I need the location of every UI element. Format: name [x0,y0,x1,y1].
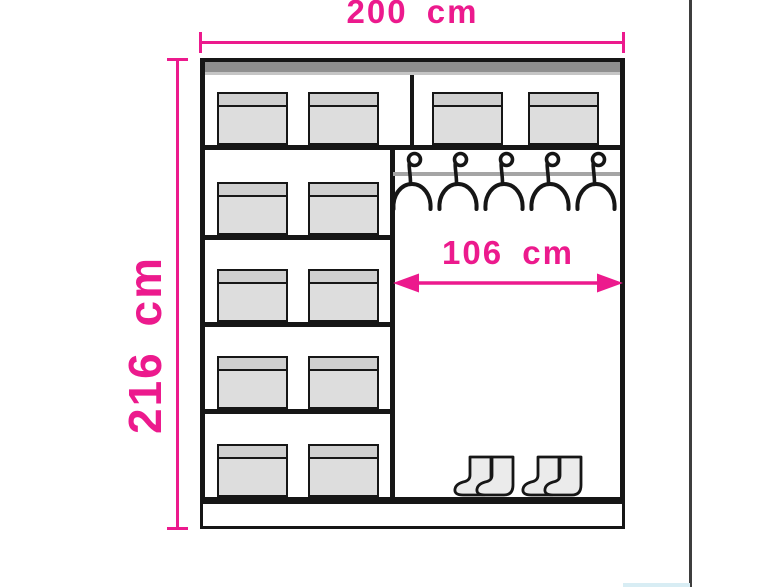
wardrobe-top-strip [205,62,620,75]
storage-box [217,92,288,145]
storage-box [217,444,288,497]
diagram-canvas: 200 cm 216 cm 106 cm [0,0,784,587]
storage-box [308,92,379,145]
left-column-shelf [205,409,395,414]
clothes-hanger-icon [390,150,434,216]
width-dimension-label: 200 cm [200,0,625,28]
inner-width-dimension-label: 106 cm [392,236,624,269]
top-shelf-divider [410,75,414,145]
box-lid [219,94,286,107]
clothes-hanger-icon [482,150,526,216]
storage-box [308,444,379,497]
storage-box [217,356,288,409]
inner-width-arrow [392,270,624,296]
storage-box [308,182,379,235]
box-lid [219,271,286,284]
boots-icon [521,454,583,500]
height-dimension-line [176,58,179,530]
storage-box [308,356,379,409]
box-lid [310,94,377,107]
box-lid [434,94,501,107]
storage-box [308,269,379,322]
box-lid [219,184,286,197]
left-column-shelf [205,322,395,327]
boots-icon [453,454,515,500]
box-lid [310,358,377,371]
dimension-tick [199,32,202,53]
left-column-shelf [205,235,395,240]
storage-box [217,269,288,322]
storage-box [528,92,599,145]
clothes-hanger-icon [436,150,480,216]
dimension-tick [167,527,188,530]
clothes-hanger-icon [574,150,618,216]
box-lid [310,271,377,284]
width-dimension-line [199,41,625,44]
height-dimension-label: 216 cm [118,256,172,434]
storage-box [432,92,503,145]
footer-accent-bar [623,583,690,587]
clothes-hanger-icon [528,150,572,216]
plinth-base [200,504,625,529]
box-lid [219,446,286,459]
box-lid [310,184,377,197]
storage-box [217,182,288,235]
dimension-tick [167,58,188,61]
wardrobe-left-wall [200,58,205,504]
page-frame-line [689,0,692,587]
dimension-tick [622,32,625,53]
box-lid [530,94,597,107]
box-lid [219,358,286,371]
box-lid [310,446,377,459]
